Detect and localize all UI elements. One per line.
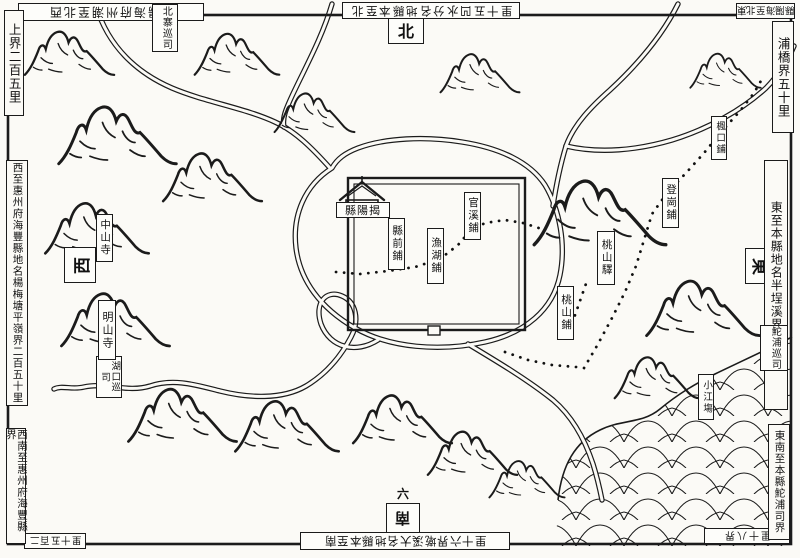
temple-zhongshan: 中山寺	[96, 214, 113, 262]
border-note-bottom-left: 二百五十里	[24, 533, 86, 549]
compass-south: 南	[386, 503, 420, 533]
sea-waves	[556, 337, 792, 546]
distance-six: 六	[388, 485, 418, 501]
historical-county-map: 北 南 六 東 西 西北至潮州府海陽縣 北至本縣地名分水凹五十里 東北至海陽縣 …	[0, 0, 800, 558]
station-taoshan-yi: 桃山驛	[597, 231, 615, 285]
map-artwork	[0, 0, 800, 558]
border-note-right-bottom: 東南至本縣鮀浦司界	[768, 424, 790, 540]
compass-north-label: 北	[398, 18, 414, 42]
border-note-top-right: 北至本縣地名分水凹五十里	[342, 2, 520, 19]
border-note-left-bottom: 西南至惠州府海豐縣界	[6, 428, 26, 544]
border-note-right-mid: 東至本縣地名半埕溪界一百里	[764, 160, 788, 410]
office-beizhai: 北寨巡司	[152, 4, 178, 52]
border-note-top-corner: 東北至海陽縣	[736, 3, 795, 19]
border-note-left-top: 上界二百五里	[4, 10, 24, 116]
station-xiaojiang: 小江塲	[698, 374, 714, 420]
compass-west-label: 西	[68, 257, 93, 274]
station-xianqian: 縣前鋪	[388, 218, 405, 270]
station-denggang: 登崗鋪	[662, 178, 679, 228]
compass-south-label: 南	[395, 508, 410, 529]
compass-west: 西	[64, 247, 96, 283]
border-note-bottom-center: 南至本縣地名大溪墘界六十里	[300, 532, 510, 550]
compass-north: 北	[388, 16, 424, 44]
city-name-label: 縣陽揭	[336, 202, 390, 218]
station-guanxi: 官溪鋪	[464, 192, 481, 240]
border-note-left-mid: 西至惠州府海豐縣地名楊梅塘平嶺界二百五十里	[6, 160, 28, 406]
border-note-right-top: 浦橋界五十里	[772, 21, 794, 133]
temple-mingshan: 明山寺	[98, 300, 116, 360]
station-fengkou: 楓口鋪	[711, 116, 727, 160]
office-tuopu: 鮀浦巡司	[760, 325, 788, 371]
distance-six-label: 六	[397, 485, 409, 502]
office-hukou: 湖口巡司	[96, 356, 122, 398]
station-yuhu: 漁湖鋪	[427, 228, 444, 284]
station-taoshan-pu: 桃山鋪	[557, 286, 574, 340]
